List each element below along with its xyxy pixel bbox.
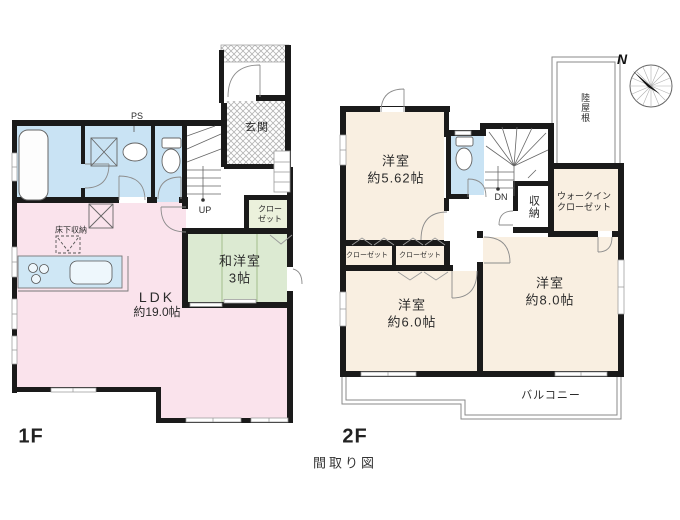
f2-stairs-dot bbox=[496, 187, 500, 191]
japanese-room-outer-door bbox=[293, 269, 302, 284]
label-compass-north: N bbox=[617, 51, 627, 67]
label-ldk-size: 約19.0帖 bbox=[133, 306, 180, 320]
label-flat-roof: 陸屋根 bbox=[580, 93, 590, 123]
label-stairs-down: DN bbox=[495, 192, 508, 202]
kitchen-counter-icon bbox=[18, 256, 128, 291]
floorplan-page: PS 玄関 UP クロー ゼット 床下収納 LDK 約19.0帖 和洋室 3帖 … bbox=[0, 0, 680, 520]
floorplan-drawing bbox=[0, 0, 680, 520]
f1-toilet-icon bbox=[162, 138, 181, 173]
label-underfloor-storage: 床下収納 bbox=[55, 225, 87, 234]
f2-storage-door bbox=[499, 211, 513, 225]
compass-spokes bbox=[630, 65, 672, 107]
label-bedroom-mid-size: 約6.0帖 bbox=[387, 316, 436, 331]
label-japanese-room-name: 和洋室 bbox=[219, 255, 261, 270]
label-bedroom-small-size: 約5.62帖 bbox=[367, 172, 424, 187]
label-entrance: 玄関 bbox=[245, 122, 269, 135]
label-bedroom-mid-name: 洋室 bbox=[398, 299, 426, 314]
f2-toilet-icon bbox=[456, 137, 473, 170]
label-wic-line2: クローゼット bbox=[557, 202, 611, 212]
label-balcony: バルコニー bbox=[521, 390, 581, 403]
label-bedroom-large-size: 約8.0帖 bbox=[525, 294, 574, 309]
label-pipe-space: PS bbox=[131, 111, 143, 121]
label-f1-closet-line1: クロー bbox=[258, 204, 282, 213]
label-f2-closet-right: クローゼット bbox=[399, 252, 441, 260]
bathtub-icon bbox=[19, 130, 48, 200]
label-f1-closet-line2: ゼット bbox=[258, 214, 282, 223]
vanity-sink-icon bbox=[123, 143, 147, 161]
entrance-step-icon bbox=[274, 151, 290, 192]
page-title: 間取り図 bbox=[313, 457, 377, 472]
label-floor1: 1F bbox=[18, 426, 43, 449]
label-wic-line1: ウォークイン bbox=[557, 191, 611, 201]
f1-stairs-dot bbox=[201, 198, 205, 202]
entrance-door bbox=[228, 65, 260, 97]
label-floor2: 2F bbox=[342, 426, 367, 449]
label-japanese-room-size: 3帖 bbox=[229, 272, 251, 287]
label-ldk-name: LDK bbox=[139, 289, 175, 305]
compass-rose bbox=[630, 65, 672, 107]
label-f2-storage: 収納 bbox=[527, 195, 540, 219]
f1-stairs-floor bbox=[186, 124, 226, 204]
label-f2-closet-left: クローゼット bbox=[346, 252, 388, 260]
label-bedroom-large-name: 洋室 bbox=[536, 277, 564, 292]
f1-porch bbox=[221, 45, 289, 62]
label-bedroom-small-name: 洋室 bbox=[382, 155, 410, 170]
label-stairs-up: UP bbox=[199, 205, 212, 215]
